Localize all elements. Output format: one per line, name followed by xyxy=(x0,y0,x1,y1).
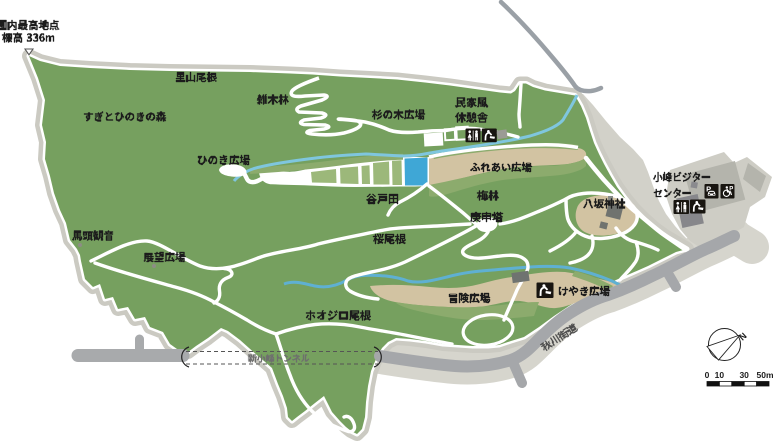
svg-text:30: 30 xyxy=(739,370,749,380)
svg-text:50m: 50m xyxy=(756,370,773,380)
svg-text:10: 10 xyxy=(715,370,725,380)
svg-text:0: 0 xyxy=(705,370,710,380)
